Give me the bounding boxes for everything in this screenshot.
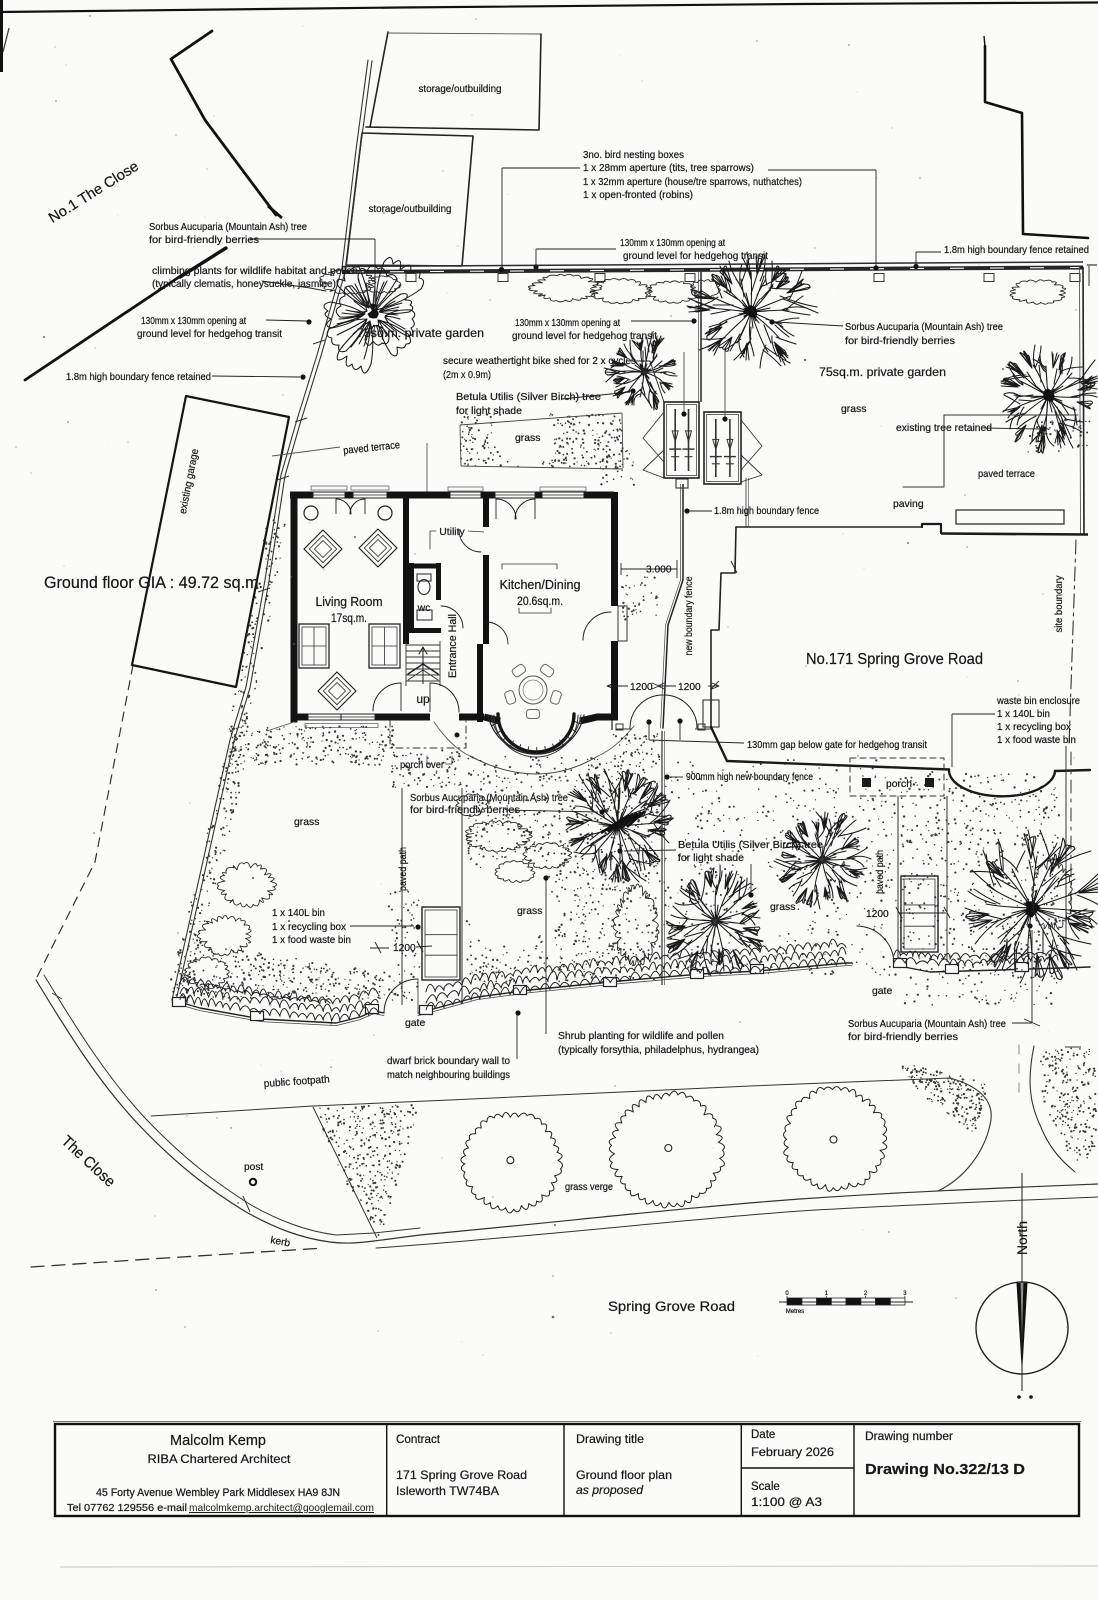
svg-text:1 x 28mm aperture (tits, tree: 1 x 28mm aperture (tits, tree sparrows)	[583, 163, 754, 174]
svg-text:grass: grass	[770, 902, 795, 913]
svg-text:130mm x 130mm opening at: 130mm x 130mm opening at	[515, 318, 620, 329]
svg-text:Scale: Scale	[751, 1481, 780, 1493]
svg-text:post: post	[244, 1162, 263, 1173]
svg-text:new boundary fence: new boundary fence	[684, 576, 695, 655]
svg-text:20.6sq.m.: 20.6sq.m.	[517, 596, 563, 608]
svg-text:gate: gate	[872, 986, 892, 997]
svg-text:for light shade: for light shade	[678, 853, 744, 864]
svg-text:1200: 1200	[678, 682, 701, 693]
svg-text:Ground floor plan: Ground floor plan	[576, 1468, 672, 1482]
svg-text:for bird-friendly berries: for bird-friendly berries	[845, 336, 955, 347]
svg-text:Isleworth TW74BA: Isleworth TW74BA	[396, 1484, 499, 1498]
svg-text:Sorbus Aucuparia (Mountain Ash: Sorbus Aucuparia (Mountain Ash) tree	[149, 222, 307, 233]
svg-text:900mm high new boundary fence: 900mm high new boundary fence	[686, 772, 813, 783]
svg-text:for bird-friendly berries: for bird-friendly berries	[848, 1032, 958, 1043]
svg-text:1.8m high boundary fence: 1.8m high boundary fence	[714, 506, 819, 517]
svg-text:Living Room: Living Room	[316, 595, 383, 609]
svg-text:75sq.m. private garden: 75sq.m. private garden	[819, 365, 946, 379]
svg-text:1 x open-fronted (robins): 1 x open-fronted (robins)	[583, 190, 693, 201]
svg-text:Drawing number: Drawing number	[865, 1431, 953, 1443]
svg-text:for light shade: for light shade	[456, 406, 522, 417]
svg-text:wc: wc	[417, 603, 431, 614]
svg-text:storage/outbuilding: storage/outbuilding	[369, 204, 452, 215]
svg-text:porch: porch	[886, 779, 912, 790]
svg-text:ground level for hedgehog tran: ground level for hedgehog transit	[137, 329, 282, 340]
svg-text:1 x 140L bin: 1 x 140L bin	[997, 709, 1050, 720]
svg-text:Sorbus Aucuparia (Mountain Ash: Sorbus Aucuparia (Mountain Ash) tree	[410, 793, 568, 804]
svg-text:ground level for hedgehog tran: ground level for hedgehog transit	[512, 331, 657, 342]
svg-text:dwarf brick boundary wall to: dwarf brick boundary wall to	[387, 1056, 510, 1067]
svg-text:as proposed: as proposed	[576, 1483, 643, 1497]
svg-text:130mm x 130mm opening at: 130mm x 130mm opening at	[141, 316, 246, 327]
svg-text:Kitchen/Dining: Kitchen/Dining	[500, 577, 581, 592]
svg-text:1.8m high boundary fence retai: 1.8m high boundary fence retained	[66, 372, 211, 383]
svg-text:Sorbus Aucuparia (Mountain Ash: Sorbus Aucuparia (Mountain Ash) tree	[848, 1019, 1006, 1030]
svg-text:February 2026: February 2026	[751, 1445, 834, 1459]
svg-text:130mm gap below gate for hedge: 130mm gap below gate for hedgehog transi…	[747, 740, 927, 751]
svg-text:1200: 1200	[630, 682, 653, 693]
svg-text:(2m x 0.9m): (2m x 0.9m)	[443, 370, 491, 381]
svg-text:Ground floor GIA : 49.72 sq.m.: Ground floor GIA : 49.72 sq.m.	[44, 574, 263, 592]
svg-text:No.171 Spring Grove Road: No.171 Spring Grove Road	[806, 651, 983, 668]
svg-text:(typically clematis, honeysuck: (typically clematis, honeysuckle, jasmin…	[152, 279, 336, 290]
svg-text:RIBA Chartered Architect: RIBA Chartered Architect	[148, 1452, 292, 1466]
svg-text:grass verge: grass verge	[565, 1182, 613, 1193]
svg-text:17sq.m.: 17sq.m.	[331, 613, 367, 625]
svg-text:gate: gate	[405, 1018, 425, 1029]
svg-text:storage/outbuilding: storage/outbuilding	[419, 84, 502, 95]
svg-text:(typically forsythia, philadel: (typically forsythia, philadelphus, hydr…	[558, 1045, 759, 1056]
svg-text:1200: 1200	[866, 909, 889, 920]
svg-text:Drawing No.322/13 D: Drawing No.322/13 D	[865, 1461, 1025, 1478]
svg-text:paving: paving	[893, 499, 924, 510]
svg-text:malcolmkemp.architect@googlema: malcolmkemp.architect@googlemail.com	[189, 1503, 374, 1514]
svg-text:secure weathertight bike shed: secure weathertight bike shed for 2 x cy…	[443, 356, 636, 367]
svg-text:Metres: Metres	[786, 1309, 804, 1315]
svg-text:1 x 32mm aperture (house/tre s: 1 x 32mm aperture (house/tre sparrows, n…	[583, 177, 802, 188]
svg-text:Tel 07762 129556 e-mail: Tel 07762 129556 e-mail	[67, 1503, 187, 1514]
svg-text:1 x 140L bin: 1 x 140L bin	[272, 908, 325, 919]
svg-text:45 Forty Avenue Wembley Park M: 45 Forty Avenue Wembley Park Middlesex H…	[96, 1487, 340, 1499]
svg-text:paved terrace: paved terrace	[978, 469, 1035, 480]
svg-text:Date: Date	[751, 1429, 775, 1441]
svg-text:130mm x 130mm opening at: 130mm x 130mm opening at	[620, 238, 725, 249]
svg-text:up: up	[416, 692, 430, 706]
svg-text:North: North	[1015, 1221, 1030, 1255]
svg-text:1:100 @ A3: 1:100 @ A3	[751, 1495, 822, 1509]
svg-text:waste bin enclosure: waste bin enclosure	[996, 696, 1080, 707]
svg-text:171 Spring Grove Road: 171 Spring Grove Road	[396, 1468, 527, 1482]
svg-text:Utility: Utility	[439, 527, 465, 538]
svg-text:climbing plants for wildlife h: climbing plants for wildlife habitat and…	[152, 266, 358, 277]
svg-text:match neighbouring buildings: match neighbouring buildings	[387, 1070, 510, 1081]
svg-text:site boundary: site boundary	[1054, 575, 1065, 633]
svg-text:Betula Utilis (Silver Birch) t: Betula Utilis (Silver Birch) tree	[678, 840, 823, 851]
svg-text:1 x food waste bin: 1 x food waste bin	[997, 735, 1076, 746]
svg-text:Malcolm Kemp: Malcolm Kemp	[170, 1433, 266, 1449]
svg-text:3.000: 3.000	[646, 565, 672, 576]
svg-text:grass: grass	[517, 906, 542, 917]
svg-text:Contract: Contract	[396, 1434, 441, 1446]
svg-text:grass: grass	[515, 433, 540, 444]
svg-text:grass: grass	[841, 404, 866, 415]
svg-text:Entrance Hall: Entrance Hall	[447, 614, 459, 678]
svg-text:grass: grass	[294, 817, 319, 828]
svg-text:1 x recycling box: 1 x recycling box	[997, 722, 1072, 733]
svg-text:1 x recycling box: 1 x recycling box	[272, 922, 347, 933]
svg-text:1.8m high boundary fence retai: 1.8m high boundary fence retained	[944, 245, 1089, 256]
svg-text:75sq.m. private garden: 75sq.m. private garden	[357, 326, 484, 340]
svg-text:1 x food waste bin: 1 x food waste bin	[272, 935, 351, 946]
svg-text:3no. bird nesting boxes: 3no. bird nesting boxes	[583, 150, 684, 161]
svg-text:Shrub planting for wildlife an: Shrub planting for wildlife and pollen	[558, 1031, 724, 1042]
svg-text:ground level for hedgehog tran: ground level for hedgehog transit	[623, 251, 768, 262]
svg-text:paved path: paved path	[398, 847, 409, 891]
svg-text:for bird-friendly berries: for bird-friendly berries	[149, 235, 259, 246]
svg-text:Drawing title: Drawing title	[576, 1434, 644, 1446]
svg-text:Spring Grove Road: Spring Grove Road	[608, 1299, 735, 1314]
